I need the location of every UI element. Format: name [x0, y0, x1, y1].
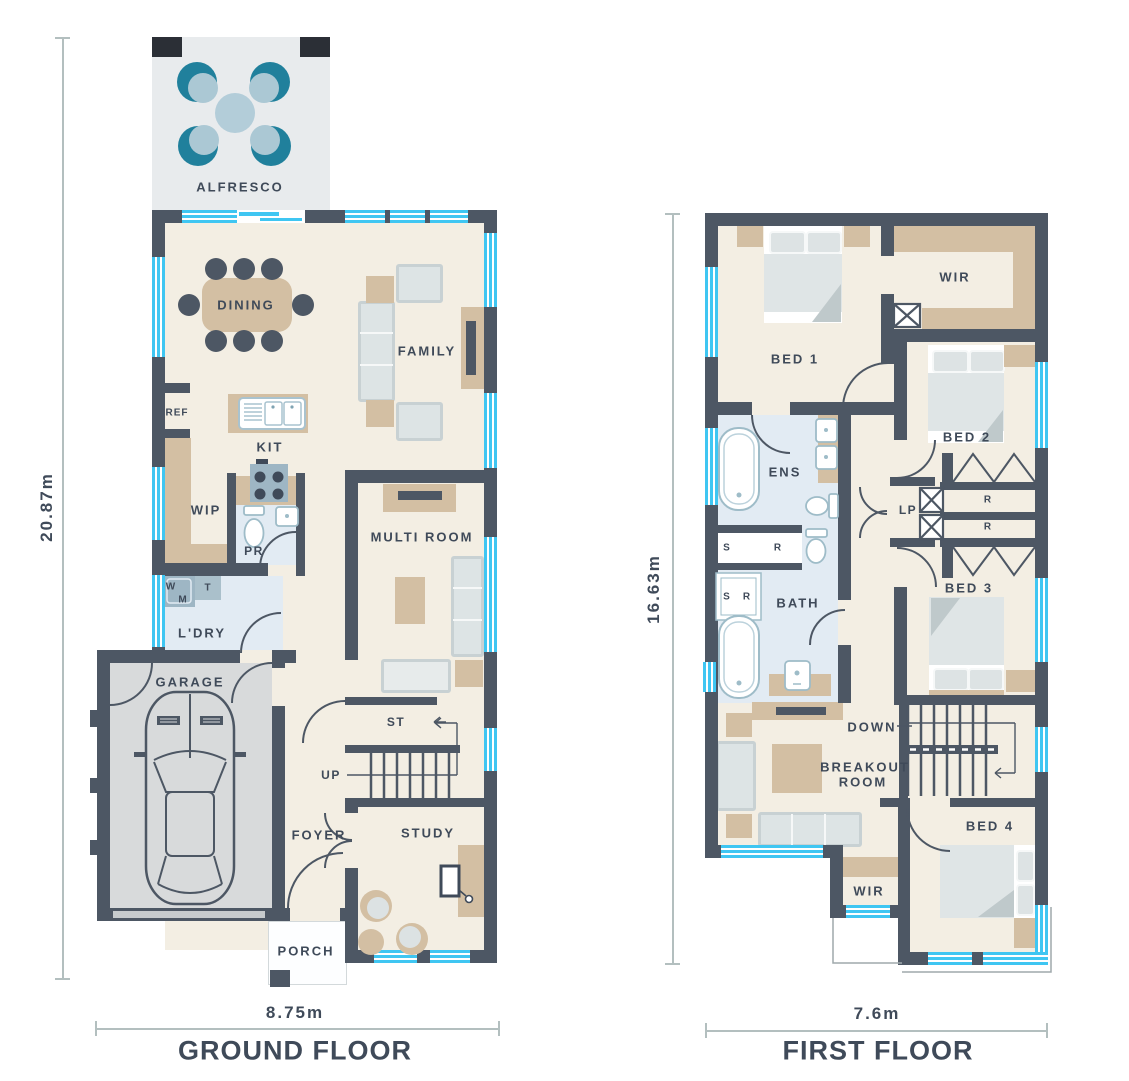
- dim-tick: [1046, 1023, 1048, 1038]
- bed1-side-table: [737, 226, 763, 247]
- multi-ottoman: [381, 659, 451, 693]
- room-label-lp: LP: [899, 503, 917, 517]
- sofa-seam: [824, 814, 826, 845]
- sofa-seam: [360, 332, 393, 334]
- family-sofa: [358, 301, 395, 402]
- window: [484, 728, 497, 771]
- dim-label-ground-height: 20.87m: [37, 472, 57, 542]
- breakout-sofa: [758, 812, 862, 847]
- dim-label-first-width: 7.6m: [854, 1004, 901, 1024]
- room-label-ens: ENS: [769, 465, 802, 480]
- ens-vanity: [818, 413, 838, 483]
- pillow: [1016, 850, 1035, 882]
- pillow: [968, 668, 1004, 691]
- robe-label-r: R: [984, 495, 992, 506]
- window: [182, 210, 237, 223]
- kitchen-island: [228, 394, 308, 433]
- sofa-seam: [360, 364, 393, 366]
- cooktop-knobs: [256, 459, 268, 464]
- dim-tick: [498, 1021, 500, 1036]
- room-label-wir-bottom: WIR: [853, 884, 884, 899]
- breakout-rug: [772, 744, 822, 793]
- window: [1035, 727, 1048, 772]
- room-label-bed1: BED 1: [771, 352, 819, 367]
- room-label-study: STUDY: [401, 826, 455, 841]
- window: [152, 467, 165, 540]
- room-label-bed2: BED 2: [943, 430, 991, 445]
- pillow: [1016, 884, 1035, 916]
- window: [983, 952, 1048, 965]
- room-label-alfresco: ALFRESCO: [196, 180, 284, 195]
- window: [721, 845, 823, 858]
- room-label-bed4: BED 4: [966, 819, 1014, 834]
- bed2-mattress: [928, 373, 1004, 431]
- alfresco-post: [152, 37, 182, 57]
- sofa-seam: [791, 814, 793, 845]
- bed2-side-table: [1004, 345, 1035, 367]
- dim-tick: [95, 1021, 97, 1036]
- room-label-ldry: L'DRY: [178, 626, 226, 641]
- cooktop: [250, 464, 288, 502]
- appliance-label-m: M: [178, 595, 187, 606]
- dim-line-vertical-ground: [62, 37, 64, 980]
- dim-line-horizontal-ground: [95, 1028, 500, 1030]
- family-armchair-top: [396, 264, 443, 303]
- robe-label-r: R: [984, 522, 992, 533]
- dim-tick: [55, 37, 70, 39]
- dim-tick: [665, 213, 680, 215]
- sliding-door-panel: [260, 218, 302, 221]
- room-label-multi: MULTI ROOM: [371, 530, 474, 545]
- room-label-pr: PR: [244, 544, 264, 558]
- shower-label-s: S: [723, 592, 731, 603]
- pillow: [769, 231, 806, 254]
- multi-rug: [395, 577, 425, 624]
- linen-label-s: S: [723, 543, 731, 554]
- sofa-seam: [453, 619, 482, 621]
- window: [345, 210, 468, 223]
- stair-label-down: DOWN: [847, 720, 896, 735]
- family-tv: [466, 321, 476, 375]
- garage-door: [113, 911, 265, 918]
- bed4-mattress: [940, 845, 1014, 918]
- window: [928, 952, 972, 965]
- porch-pillar: [270, 970, 290, 987]
- wir-robe: [922, 308, 1035, 329]
- floor-plan-sheet: ALFRESCO DINING FAMILY REF KIT WIP PR MU…: [0, 0, 1129, 1081]
- room-label-wir-top: WIR: [939, 270, 970, 285]
- bed1-side-table: [844, 226, 870, 247]
- dim-line-horizontal-first: [705, 1030, 1048, 1032]
- garage-floor: [110, 663, 272, 908]
- bed3-mattress: [929, 597, 1004, 665]
- window: [484, 233, 497, 307]
- window: [705, 428, 718, 505]
- pillow: [806, 231, 842, 254]
- bath-vanity: [769, 674, 831, 696]
- breakout-tv: [776, 707, 826, 715]
- window: [484, 393, 497, 468]
- window: [430, 950, 470, 963]
- study-desk: [458, 845, 484, 917]
- alfresco-post: [300, 37, 330, 57]
- appliance-label-t: T: [204, 583, 211, 594]
- room-label-bath: BATH: [776, 596, 819, 611]
- sliding-door-panel: [239, 212, 279, 216]
- window: [1035, 362, 1048, 448]
- dim-tick: [705, 1023, 707, 1038]
- window: [374, 950, 417, 963]
- room-label-family: FAMILY: [398, 344, 456, 359]
- bed1-mattress: [764, 254, 842, 312]
- wir-robe: [1013, 252, 1035, 308]
- room-label-dining: DINING: [217, 298, 275, 313]
- multi-side-table: [455, 660, 483, 687]
- breakout-armchair: [716, 741, 756, 811]
- dim-label-ground-width: 8.75m: [266, 1003, 324, 1023]
- family-side-table: [366, 400, 394, 427]
- pillow: [969, 350, 1005, 373]
- room-label-up: UP: [321, 768, 341, 782]
- wip-bench-left: [165, 438, 191, 544]
- room-label-kit: KIT: [257, 440, 284, 455]
- wir2-robe: [843, 857, 898, 877]
- window: [152, 575, 165, 647]
- room-label-breakout-1: BREAKOUT: [820, 760, 910, 775]
- ground-floor-title: GROUND FLOOR: [178, 1036, 412, 1067]
- window: [152, 257, 165, 357]
- room-label-foyer: FOYER: [292, 828, 347, 843]
- dim-label-first-height: 16.63m: [644, 554, 664, 624]
- wir-robe: [894, 226, 1035, 252]
- window: [1035, 578, 1048, 662]
- room-label-wip: WIP: [191, 503, 222, 518]
- garage-pier: [90, 840, 98, 855]
- breakout-side-table: [726, 814, 752, 838]
- shower-label-r: R: [743, 592, 751, 603]
- dim-tick: [665, 963, 680, 965]
- first-floor-title: FIRST FLOOR: [783, 1036, 974, 1067]
- multi-tv: [398, 491, 442, 500]
- pillow: [932, 350, 969, 373]
- linen-label-r: R: [774, 543, 782, 554]
- room-label-ref: REF: [166, 408, 189, 419]
- window: [846, 905, 890, 918]
- family-armchair-bottom: [396, 402, 443, 441]
- room-label-garage: GARAGE: [155, 675, 224, 690]
- window: [705, 267, 718, 357]
- dim-tick: [55, 978, 70, 980]
- window: [703, 662, 716, 692]
- garage-pier: [90, 778, 98, 793]
- multi-sofa: [451, 556, 484, 657]
- garage-pier: [90, 710, 98, 727]
- pillow: [933, 668, 969, 691]
- appliance-label-w: W: [166, 582, 176, 593]
- bed3-side-table: [1006, 670, 1035, 692]
- dim-line-vertical-first: [672, 213, 674, 965]
- room-label-breakout-2: ROOM: [839, 775, 887, 790]
- room-label-bed3: BED 3: [945, 581, 993, 596]
- breakout-side-table: [726, 713, 752, 737]
- window: [484, 537, 497, 652]
- family-side-table: [366, 276, 394, 303]
- room-label-st: ST: [387, 715, 405, 729]
- sofa-seam: [453, 587, 482, 589]
- room-label-porch: PORCH: [278, 944, 335, 959]
